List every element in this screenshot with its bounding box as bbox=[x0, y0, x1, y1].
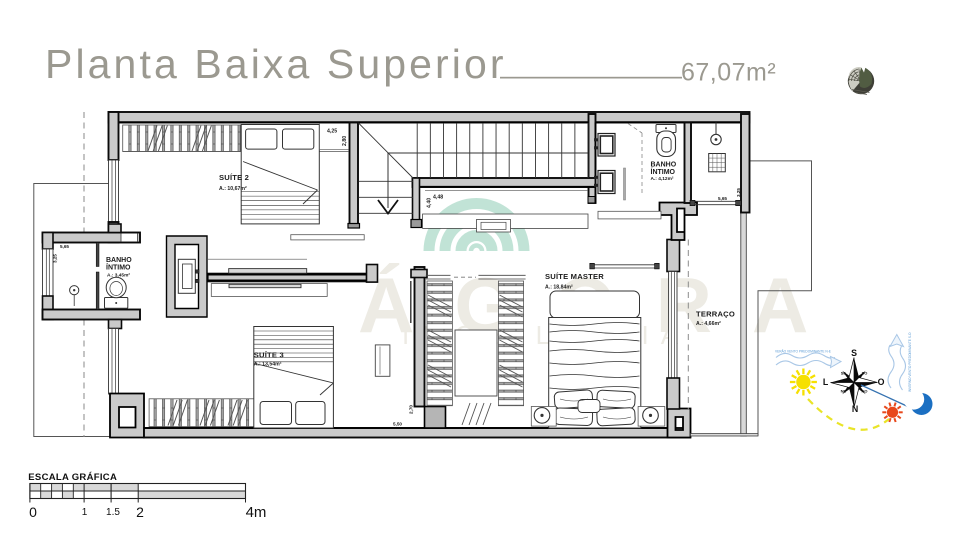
svg-text:0: 0 bbox=[29, 504, 37, 520]
svg-text:3,25: 3,25 bbox=[53, 254, 58, 263]
svg-text:5,50: 5,50 bbox=[393, 422, 402, 427]
svg-text:3,25: 3,25 bbox=[736, 188, 741, 197]
svg-text:A.: 3,45m²: A.: 3,45m² bbox=[107, 273, 130, 279]
svg-text:O: O bbox=[878, 377, 885, 387]
svg-text:1: 1 bbox=[82, 507, 88, 518]
svg-text:A.: 4,12m²: A.: 4,12m² bbox=[651, 176, 674, 182]
svg-text:INVERNO VENTO PREDOMINANTE S-O: INVERNO VENTO PREDOMINANTE S-O bbox=[908, 332, 912, 392]
svg-text:S: S bbox=[851, 348, 857, 358]
svg-text:4,48: 4,48 bbox=[433, 195, 443, 201]
svg-text:A.: 13,54m²: A.: 13,54m² bbox=[254, 362, 282, 368]
svg-text:67,07m²: 67,07m² bbox=[681, 59, 776, 87]
svg-text:SE: SE bbox=[841, 371, 847, 376]
svg-text:4,40: 4,40 bbox=[427, 198, 433, 208]
svg-text:4m: 4m bbox=[246, 504, 267, 521]
svg-text:NE: NE bbox=[841, 389, 847, 394]
svg-text:A.: 18,84m²: A.: 18,84m² bbox=[545, 285, 573, 291]
svg-text:VERÃO VENTO PREDOMINANTE N-E: VERÃO VENTO PREDOMINANTE N-E bbox=[775, 349, 831, 354]
svg-text:5,65: 5,65 bbox=[718, 196, 727, 201]
svg-text:1.5: 1.5 bbox=[106, 507, 120, 518]
svg-text:ÍNTIMO: ÍNTIMO bbox=[106, 262, 131, 271]
svg-text:BANHO: BANHO bbox=[651, 162, 677, 169]
svg-text:N: N bbox=[852, 404, 858, 414]
svg-text:4,25: 4,25 bbox=[327, 129, 337, 135]
svg-text:ÍNTIMO: ÍNTIMO bbox=[651, 167, 676, 176]
svg-text:SUÍTE 3: SUÍTE 3 bbox=[254, 351, 284, 360]
svg-text:2,80: 2,80 bbox=[342, 136, 348, 146]
svg-text:A.: 4,66m²: A.: 4,66m² bbox=[696, 321, 721, 327]
svg-text:BANHO: BANHO bbox=[106, 257, 132, 264]
svg-text:Planta Baixa Superior: Planta Baixa Superior bbox=[45, 41, 507, 87]
svg-text:ESCALA GRÁFICA: ESCALA GRÁFICA bbox=[28, 472, 117, 483]
svg-text:2: 2 bbox=[136, 504, 144, 520]
svg-text:NO: NO bbox=[862, 389, 868, 394]
svg-text:L: L bbox=[823, 377, 829, 387]
svg-text:TERRAÇO: TERRAÇO bbox=[696, 310, 735, 319]
svg-text:A.: 10,67m²: A.: 10,67m² bbox=[219, 186, 247, 192]
svg-text:SUÍTE 2: SUÍTE 2 bbox=[219, 173, 249, 182]
svg-text:5,65: 5,65 bbox=[60, 244, 69, 249]
svg-text:2,70: 2,70 bbox=[409, 405, 414, 414]
svg-text:SO: SO bbox=[862, 371, 868, 376]
svg-text:SUÍTE MASTER: SUÍTE MASTER bbox=[545, 272, 604, 281]
